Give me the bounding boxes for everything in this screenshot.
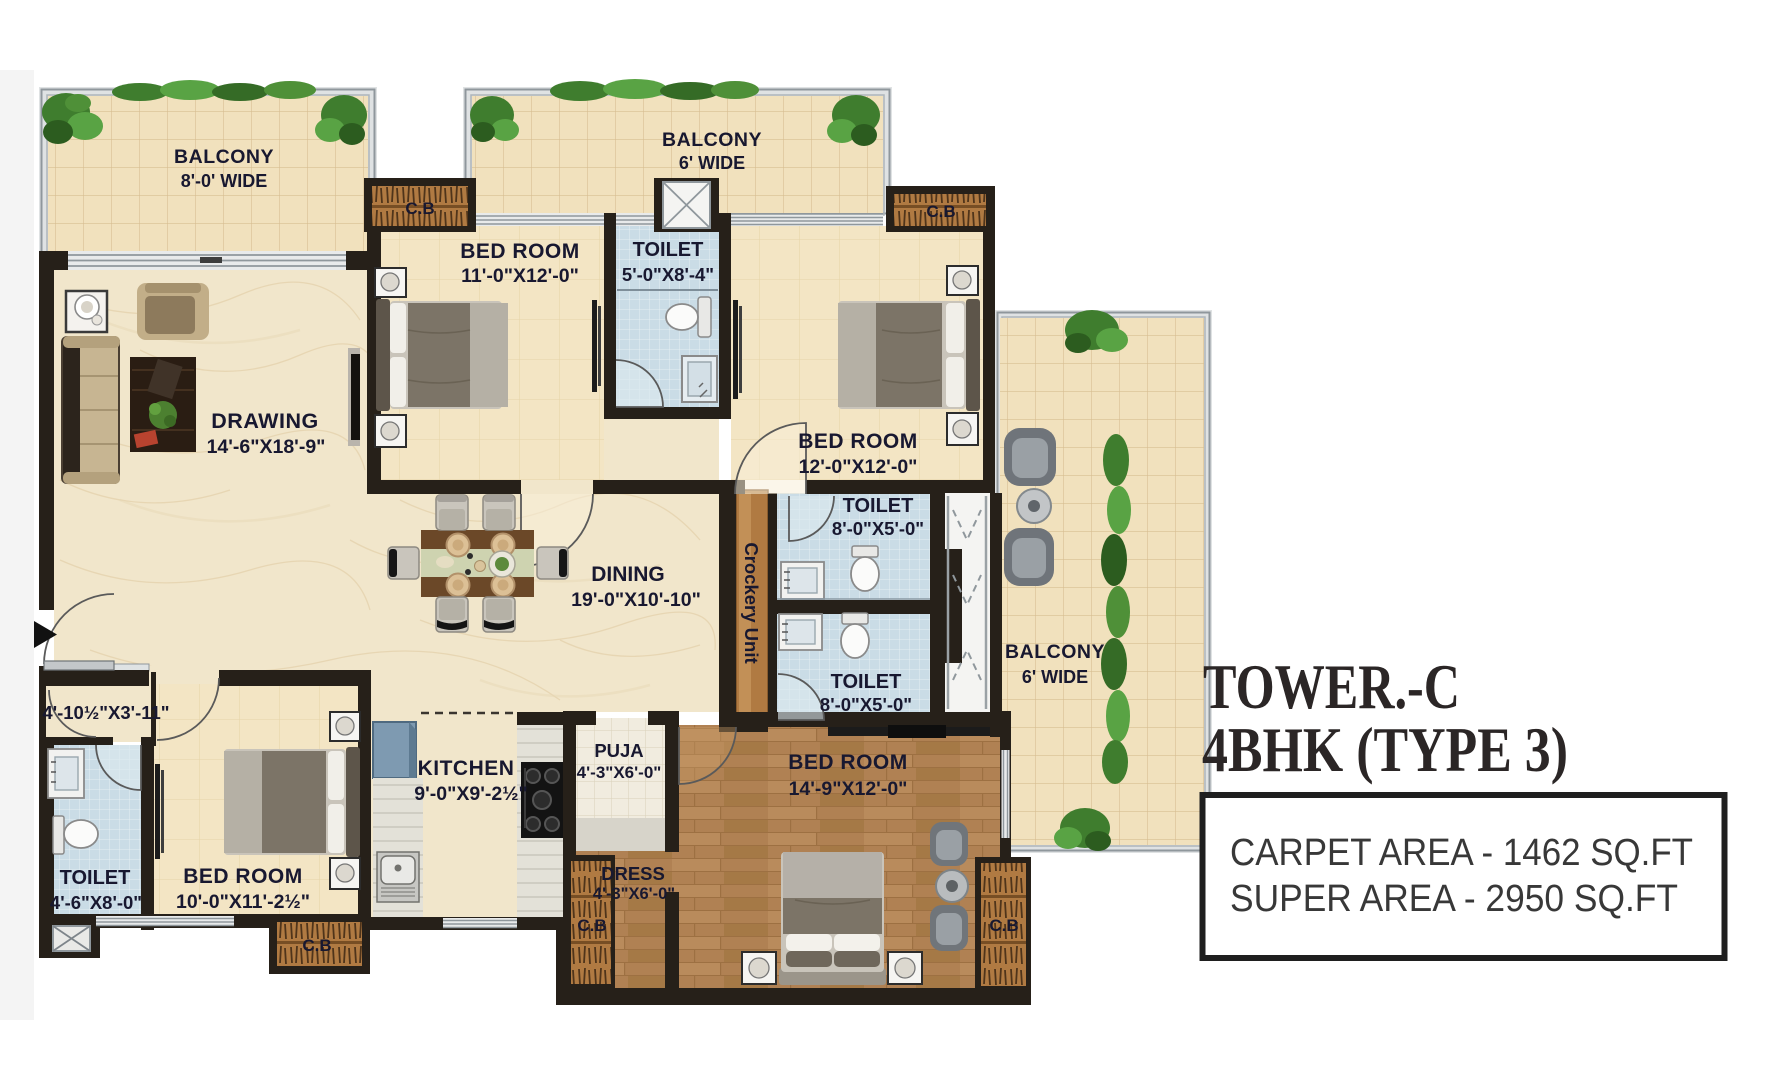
svg-text:9'-0"X9'-2½": 9'-0"X9'-2½" bbox=[414, 783, 527, 805]
svg-text:C.B: C.B bbox=[302, 936, 331, 955]
svg-text:19'-0"X10'-10": 19'-0"X10'-10" bbox=[571, 589, 701, 611]
svg-text:6' WIDE: 6' WIDE bbox=[1022, 667, 1088, 687]
svg-text:BED ROOM: BED ROOM bbox=[788, 751, 908, 774]
svg-text:4'-6"X8'-0": 4'-6"X8'-0" bbox=[50, 892, 142, 913]
svg-text:TOILET: TOILET bbox=[633, 239, 704, 261]
svg-text:DRESS: DRESS bbox=[601, 863, 665, 884]
svg-text:DRAWING: DRAWING bbox=[211, 409, 318, 433]
svg-text:CARPET AREA - 1462 SQ.FT: CARPET AREA - 1462 SQ.FT bbox=[1230, 832, 1693, 874]
svg-text:6' WIDE: 6' WIDE bbox=[679, 153, 745, 173]
svg-text:14'-6"X18'-9": 14'-6"X18'-9" bbox=[207, 436, 326, 458]
svg-text:4'-10½"X3'-11": 4'-10½"X3'-11" bbox=[42, 702, 169, 723]
svg-text:TOILET: TOILET bbox=[60, 867, 131, 889]
svg-text:8'-0"X5'-0": 8'-0"X5'-0" bbox=[820, 694, 912, 715]
svg-text:12'-0"X12'-0": 12'-0"X12'-0" bbox=[799, 456, 918, 478]
svg-text:BED ROOM: BED ROOM bbox=[798, 430, 918, 453]
svg-text:8'-0' WIDE: 8'-0' WIDE bbox=[181, 171, 268, 191]
svg-text:KITCHEN: KITCHEN bbox=[418, 757, 515, 780]
svg-text:BALCONY: BALCONY bbox=[174, 146, 274, 168]
svg-text:4'-3"X6'-0": 4'-3"X6'-0" bbox=[577, 763, 662, 782]
svg-text:BED ROOM: BED ROOM bbox=[460, 240, 580, 263]
svg-text:C.B: C.B bbox=[405, 199, 434, 218]
svg-text:C.B: C.B bbox=[577, 916, 606, 935]
svg-text:BED ROOM: BED ROOM bbox=[183, 865, 303, 888]
svg-text:TOILET: TOILET bbox=[831, 671, 902, 693]
svg-text:4BHK (TYPE 3): 4BHK (TYPE 3) bbox=[1202, 714, 1568, 785]
svg-text:10'-0"X11'-2½": 10'-0"X11'-2½" bbox=[176, 891, 310, 913]
svg-text:8'-0"X5'-0": 8'-0"X5'-0" bbox=[832, 518, 924, 539]
svg-text:SUPER AREA - 2950 SQ.FT: SUPER AREA - 2950 SQ.FT bbox=[1230, 878, 1678, 920]
svg-text:DINING: DINING bbox=[591, 563, 665, 586]
svg-text:BALCONY: BALCONY bbox=[662, 129, 762, 151]
svg-text:PUJA: PUJA bbox=[594, 740, 643, 761]
svg-text:5'-0"X8'-4": 5'-0"X8'-4" bbox=[622, 264, 714, 285]
svg-text:C.B: C.B bbox=[989, 916, 1018, 935]
svg-text:BALCONY: BALCONY bbox=[1005, 641, 1105, 663]
svg-text:Crockery Unit: Crockery Unit bbox=[741, 542, 762, 663]
svg-text:TOWER.-C: TOWER.-C bbox=[1203, 651, 1460, 722]
svg-text:14'-9"X12'-0": 14'-9"X12'-0" bbox=[789, 778, 908, 800]
svg-text:TOILET: TOILET bbox=[843, 495, 914, 517]
svg-text:4'-3"X6'-0": 4'-3"X6'-0" bbox=[593, 885, 675, 903]
svg-text:C.B: C.B bbox=[926, 202, 955, 221]
svg-text:11'-0"X12'-0": 11'-0"X12'-0" bbox=[461, 265, 579, 287]
